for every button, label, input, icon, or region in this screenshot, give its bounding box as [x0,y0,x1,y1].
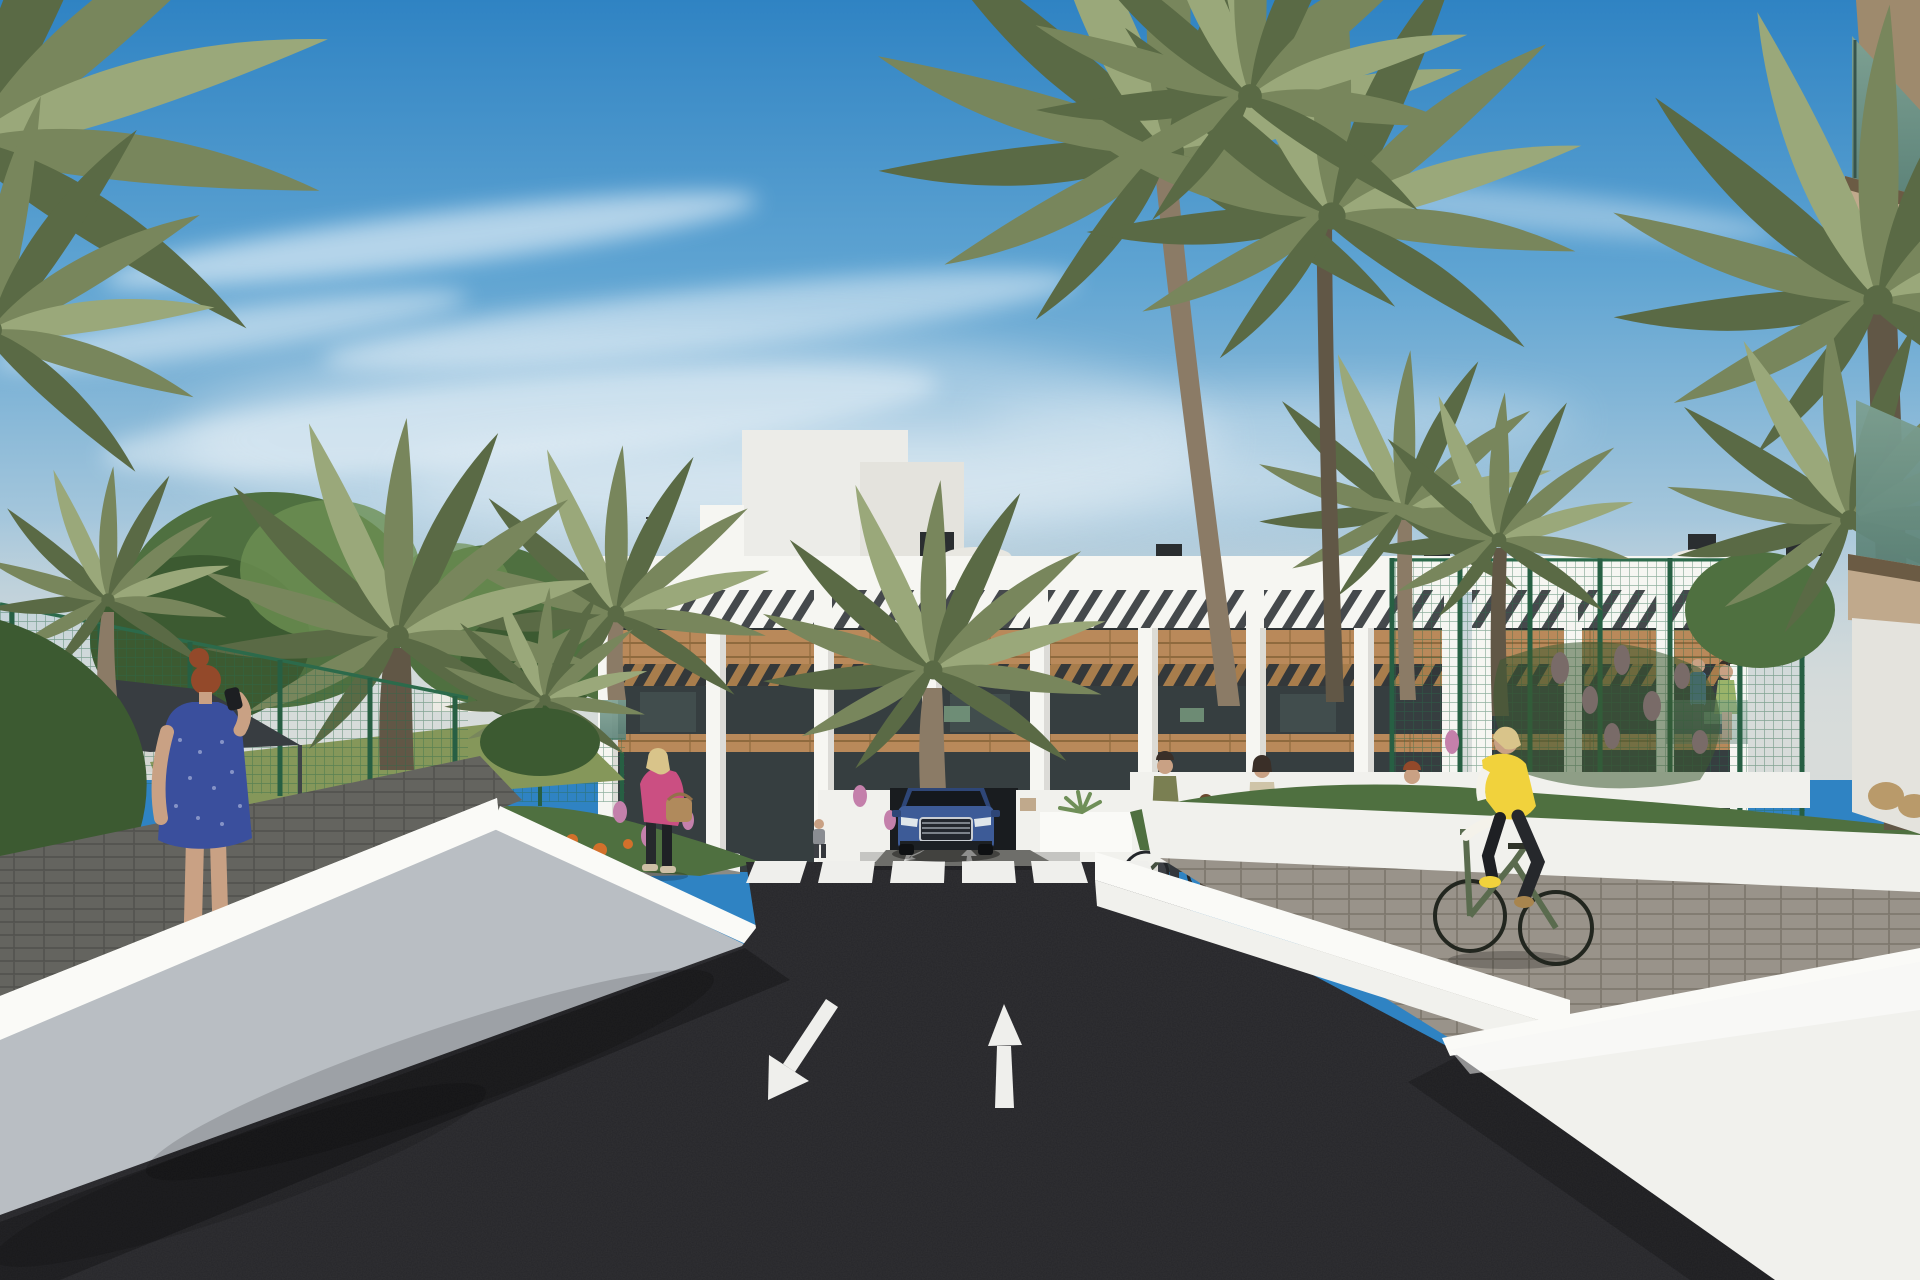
car-suv [892,788,1000,862]
garage-sign [1020,798,1036,811]
rendering-canvas [0,0,1920,1280]
agave-planter [1040,812,1132,852]
scene [0,0,1920,1280]
fg-glass-balcony-2 [1856,400,1920,566]
pink-flower-bush [1493,642,1720,789]
